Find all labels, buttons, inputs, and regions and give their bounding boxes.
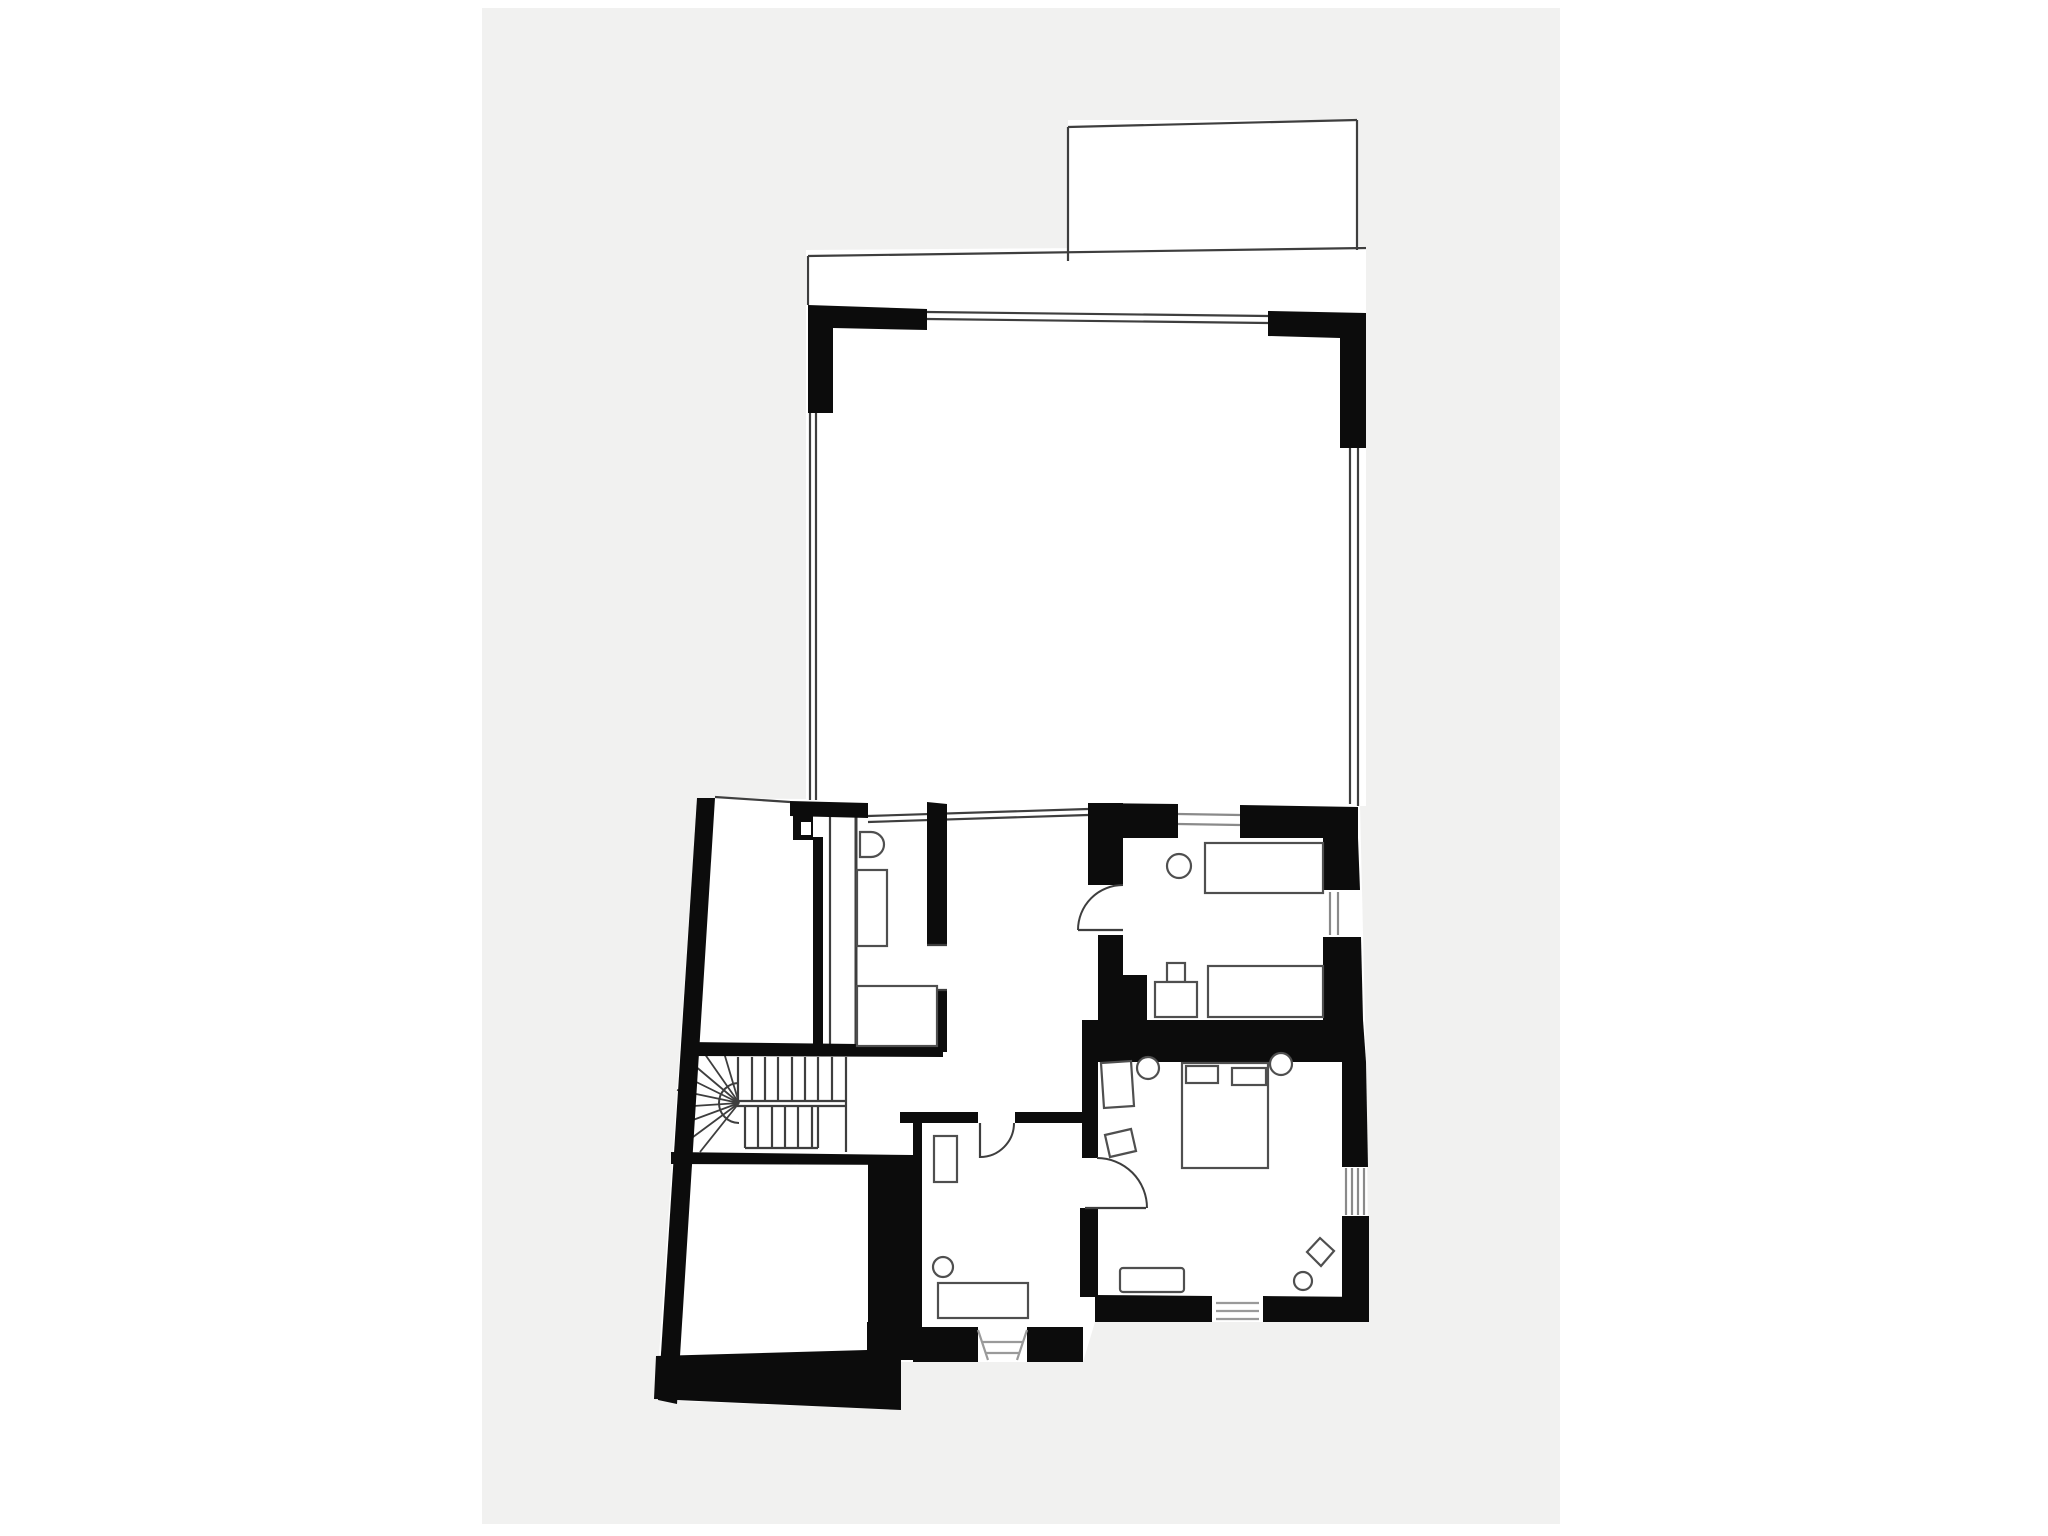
wall-sideroom-right [813, 837, 823, 1044]
entry-stub-window [801, 822, 811, 835]
bed2-wardrobe [1101, 1061, 1134, 1108]
wall-bed1-right-lower [1323, 937, 1363, 1020]
bed1-stool [1167, 854, 1191, 878]
bed2-stool-left [1137, 1057, 1159, 1079]
closet-basin [860, 832, 884, 857]
wall-bed2-bottom-right [1263, 1296, 1369, 1322]
wall-bed1-right-upper [1323, 838, 1360, 890]
bed2-stool-right [1270, 1053, 1292, 1075]
bed2-sidetable [1105, 1129, 1136, 1157]
wall-bed1-top-right [1240, 805, 1358, 838]
wall-mid-band [1082, 1020, 1366, 1062]
bed1-nightstand [1155, 982, 1197, 1017]
wall-study-bottom-right [1027, 1327, 1083, 1362]
wall-bed1-stub [1123, 975, 1147, 1020]
bed1-bed-lower [1208, 966, 1323, 1017]
wall-bed2-right-upper [1342, 1062, 1368, 1167]
wall-bed1-top-left [1088, 803, 1178, 838]
study-stool [933, 1257, 953, 1277]
closet-wardrobe-box [857, 986, 937, 1046]
bed2-dresser [1120, 1268, 1184, 1292]
wall-study-bottom-left [913, 1327, 978, 1362]
wall-study-top-left [900, 1112, 978, 1123]
wall-study-left [913, 1112, 922, 1340]
closet-cabinet [857, 870, 887, 946]
bed2-pillow-right [1232, 1068, 1266, 1085]
floor-roof-extension [1068, 120, 1357, 262]
wall-bed1-left-lower [1098, 935, 1123, 1020]
bed2-chair-stool [1294, 1272, 1312, 1290]
study-radiator [934, 1136, 957, 1182]
study-desk [938, 1283, 1028, 1318]
bed1-top-window-a [1178, 814, 1240, 815]
wall-bed2-right-lower [1342, 1216, 1369, 1297]
bed2-pillow-left [1186, 1066, 1218, 1083]
bed1-bed-upper [1205, 843, 1323, 893]
wall-hall-bed2-lower [1080, 1208, 1098, 1297]
bed1-top-window-b [1178, 824, 1240, 825]
wall-closet-right-upper [927, 802, 947, 945]
floor-plan-svg [0, 0, 2048, 1536]
bed1-nightstand-top [1167, 963, 1185, 982]
wall-bed2-bottom-left [1095, 1295, 1212, 1322]
